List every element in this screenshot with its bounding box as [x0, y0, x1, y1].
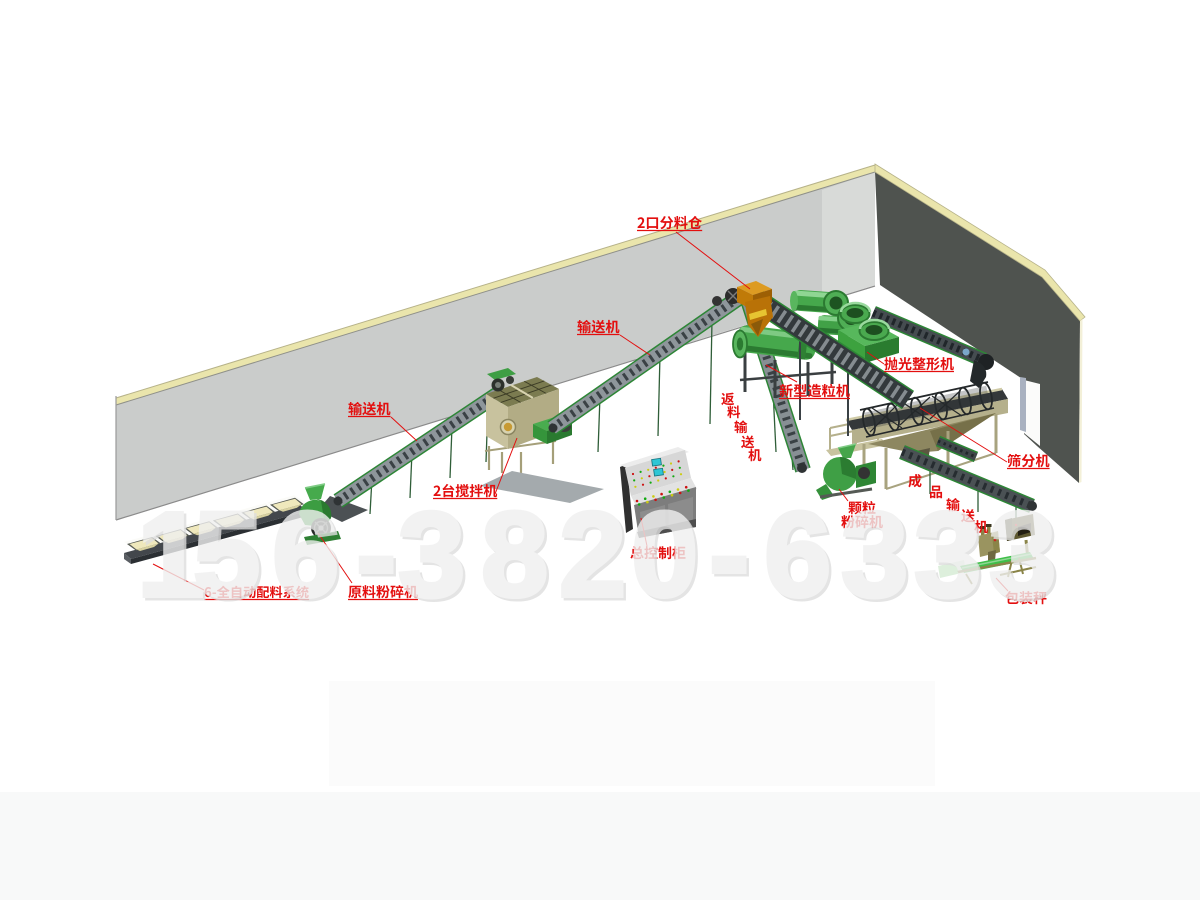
svg-text:3: 3	[398, 486, 465, 622]
svg-text:8: 8	[481, 486, 548, 622]
svg-text:3: 3	[989, 486, 1056, 622]
svg-text:3: 3	[841, 486, 908, 622]
svg-text:3: 3	[914, 486, 981, 622]
svg-text:0: 0	[631, 486, 698, 622]
svg-text:2: 2	[559, 486, 626, 622]
svg-text:6: 6	[272, 486, 339, 622]
svg-text:5: 5	[193, 486, 260, 622]
svg-text:-: -	[356, 486, 396, 622]
svg-text:-: -	[709, 486, 749, 622]
svg-text:6: 6	[764, 486, 831, 622]
